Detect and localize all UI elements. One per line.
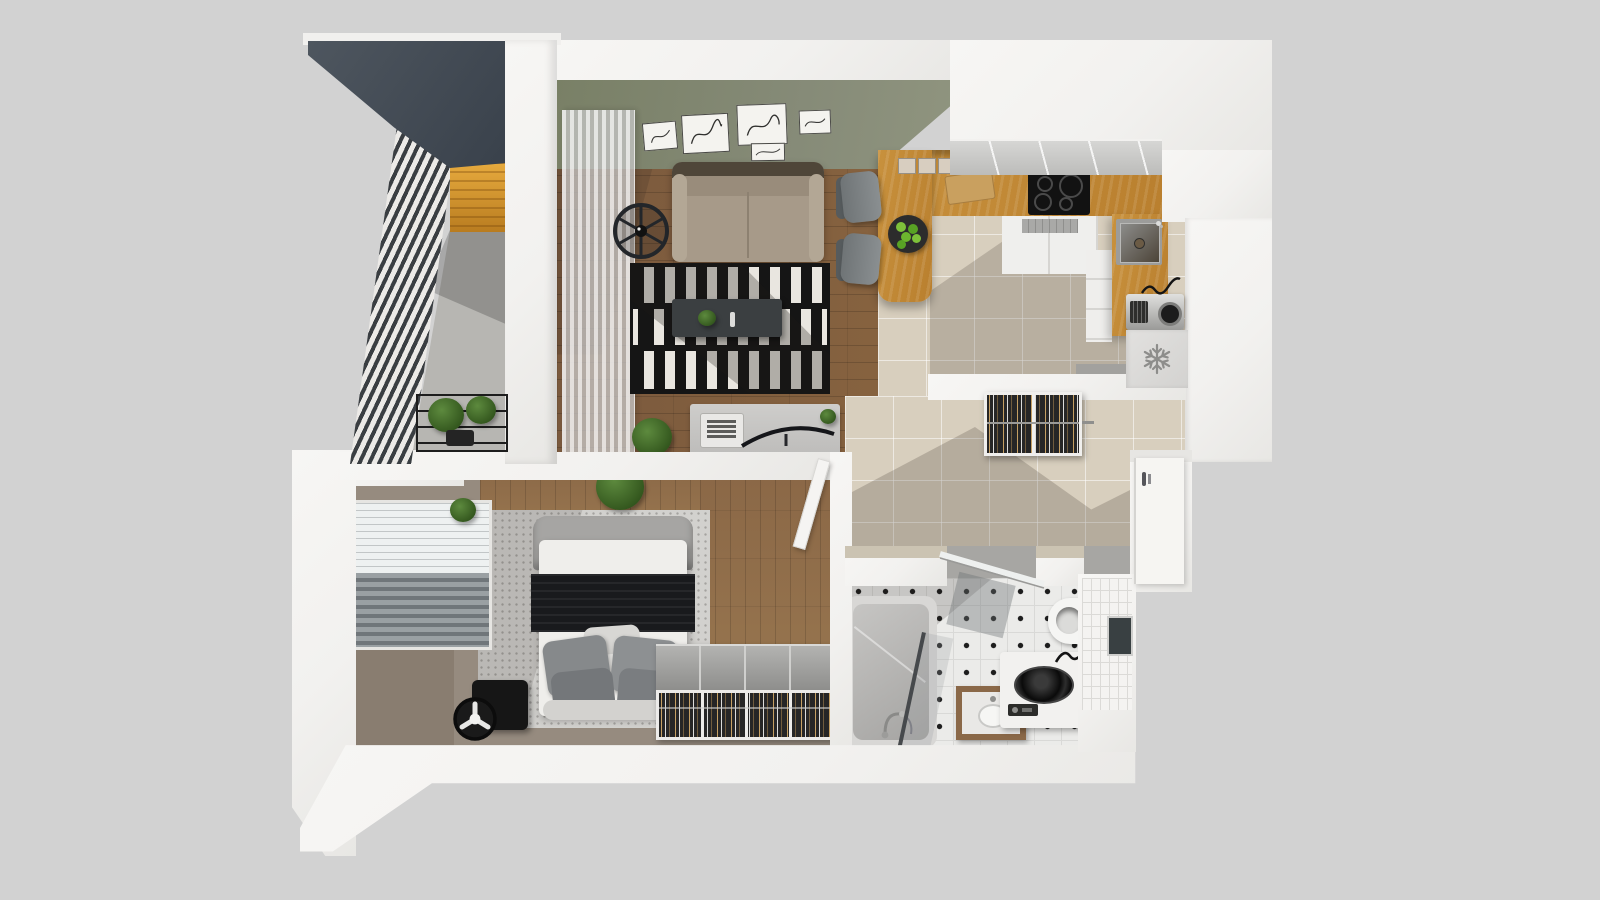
kitchen-floor: [878, 150, 1186, 398]
bathroom-floor: [845, 578, 1083, 750]
bathtub-ledge-line: [854, 626, 926, 683]
washer-knob: [1012, 707, 1018, 713]
bathtub-basin: [853, 604, 929, 740]
washing-machine: [1000, 652, 1086, 728]
bathroom-floor-shadow: [845, 578, 1083, 658]
coffee-machine-dial: [1158, 302, 1182, 326]
olive-feature-wall: [557, 73, 963, 169]
apple: [901, 232, 911, 242]
kitchen-floor-shadow: [930, 214, 1180, 398]
storage-box-2: [918, 158, 936, 174]
sofa-armrest-right: [809, 174, 824, 262]
wardrobe-rail-stub: [1082, 421, 1094, 424]
faucet: [1156, 221, 1161, 226]
bed-scatter-pillow: [583, 624, 641, 656]
snowflake-icon: [1140, 342, 1174, 376]
wall-top-right-block: [950, 40, 1272, 152]
window-glass: [355, 503, 489, 573]
glass-pane: [896, 633, 953, 780]
entry-door-lintel: [1130, 450, 1192, 462]
wall-balcony-south: [292, 450, 464, 486]
glass-edge: [892, 632, 926, 774]
stool-back: [836, 239, 848, 281]
rug-stripe-row-1: [633, 267, 827, 303]
counter-right-arm: [1112, 214, 1168, 336]
bedroom-wood-floor-right: [700, 462, 836, 666]
bedroom-floor: [345, 466, 837, 758]
desk: [690, 404, 840, 456]
balcony-floor-shadow: [425, 230, 508, 325]
extractor-grille: [1022, 219, 1078, 233]
curved-monitor: [738, 414, 838, 452]
apple: [896, 222, 906, 232]
tub-faucet: [877, 694, 919, 740]
toilet: [1048, 598, 1100, 644]
floors-layer: [0, 0, 1600, 900]
kitchen-sink: [1116, 219, 1162, 265]
washer-control-panel: [1008, 704, 1038, 716]
striped-rug: [630, 263, 830, 394]
storage-box-1: [898, 158, 916, 174]
washer-button: [1022, 708, 1032, 712]
apple: [912, 234, 921, 243]
bathtub: [845, 596, 937, 748]
toilet-tank: [1090, 601, 1098, 641]
apple: [908, 224, 918, 234]
washer-drum-lid: [1014, 666, 1074, 704]
bedroom: [0, 0, 1600, 900]
vanity-faucet: [990, 696, 996, 702]
bathroom-mirror: [1107, 616, 1133, 656]
closet-divider: [701, 693, 704, 737]
rug-shadow: [630, 263, 830, 394]
balcony-floor: [408, 230, 508, 464]
wall-art-frame-3: [736, 103, 787, 146]
bedroom-wall-under-window: [356, 646, 454, 750]
wall-right-lower: [1185, 218, 1272, 462]
bathroom-glass-door: [936, 540, 1048, 592]
subway-tile-wall: [1082, 578, 1132, 710]
entry-door-handle: [1142, 472, 1146, 486]
line-art: [643, 122, 677, 151]
wall-tile-cap: [1036, 546, 1084, 558]
line-art: [682, 114, 729, 153]
upper-cabinet-run: [950, 139, 1162, 175]
living-room-floor-shadow: [557, 73, 879, 464]
living-room-floor: [557, 73, 879, 464]
bedroom-rug-shadow: [478, 510, 710, 728]
bed-pillow-right-back: [609, 635, 679, 697]
closet-divider: [745, 693, 748, 737]
bed-bolster: [543, 700, 693, 720]
wall-entry: [1130, 450, 1192, 592]
freezer-floor-marker: [1126, 330, 1188, 388]
wall-right-upper: [1162, 150, 1272, 222]
bedroom-door-leaf: [793, 458, 831, 550]
entry-door-handle-plate: [1148, 474, 1151, 484]
counter-left-arm: [878, 150, 932, 302]
wall-tile-cap: [845, 546, 947, 558]
washer-hose: [1054, 644, 1088, 666]
induction-cooktop: [1028, 171, 1090, 215]
wall-art-frame-1: [642, 121, 678, 152]
hallway-wardrobe: [984, 392, 1082, 456]
wall-bedroom-bathroom-divider: [830, 452, 852, 764]
sofa: [672, 162, 824, 262]
wall-art-frame-4: [799, 109, 832, 134]
balcony-plant-stand: [416, 394, 508, 452]
bathroom: [0, 0, 1600, 900]
closet-divider: [789, 693, 792, 737]
sink-drain: [1134, 238, 1145, 249]
desk-plant: [820, 409, 836, 424]
wall-art-frame-5: [751, 143, 785, 162]
ceiling-fan-icon: [611, 201, 671, 261]
wall-top-living: [548, 40, 970, 80]
vanity-basin: [978, 704, 1008, 728]
wall-bathroom-north-right: [1036, 546, 1084, 586]
wardrobe-divider: [1032, 395, 1035, 453]
sofa-back-cushions: [680, 176, 816, 196]
floor-plan-scene: [0, 0, 1600, 900]
hallway: [0, 0, 1600, 900]
toilet-bowl: [1056, 607, 1082, 634]
base-cabinet-faces: [1002, 216, 1098, 274]
hallway-floor-shadow: [845, 396, 1187, 568]
glass-door-pane: [946, 572, 1015, 638]
stool-seat: [839, 170, 882, 224]
coffee-machine-slots: [1130, 301, 1148, 323]
bed-pillow-right-front: [616, 667, 681, 714]
louvered-screen: [350, 126, 452, 464]
sofa-back: [672, 162, 824, 178]
sink-basin: [1120, 223, 1160, 263]
bedroom-plant-large: [596, 464, 644, 510]
floor-fan-icon: [452, 696, 498, 742]
bedroom-wood-floor-top: [480, 462, 834, 520]
bar-stool-1: [836, 172, 880, 224]
wall-hallway-north: [928, 374, 1186, 400]
laptop: [700, 413, 744, 448]
balcony-plant-2: [466, 396, 496, 424]
counter-top-run: [878, 150, 1170, 216]
bedroom-area-rug: [478, 510, 710, 728]
shower-glass-screen: [892, 632, 955, 780]
wall-bottom-outer: [300, 744, 1162, 856]
wall-left-outer: [292, 450, 356, 856]
line-art: [737, 104, 786, 145]
bedroom-closet: [656, 644, 836, 740]
balcony-plant-1: [428, 398, 464, 432]
canopy-roof: [308, 41, 508, 168]
closet-hanger-row: [656, 690, 836, 740]
kitchen: [0, 0, 1600, 900]
hallway-floor: [845, 396, 1187, 568]
wall-bathroom-north-left: [845, 546, 947, 586]
balcony-planter-box: [446, 430, 474, 446]
cabinet-strip-right: [1086, 250, 1112, 342]
wall-art-frame-2: [681, 113, 730, 154]
rug-stripe-row-3: [633, 351, 827, 389]
bar-stool-2: [836, 234, 880, 286]
laptop-keyboard: [707, 420, 736, 440]
closet-rail: [659, 707, 833, 709]
entry-door: [1134, 458, 1184, 584]
floor-fan-body: [472, 680, 528, 730]
bed-mattress: [539, 540, 687, 716]
freezer-floor-shadow: [1076, 364, 1128, 394]
line-art: [800, 110, 831, 133]
bed-pillow-left-front: [550, 667, 616, 715]
orange-slat-wall: [450, 162, 508, 232]
sheer-curtain: [562, 110, 635, 462]
closet-top-panels: [656, 644, 836, 690]
storage-box-3: [938, 158, 956, 174]
coffee-machine-cord: [1140, 276, 1184, 296]
living-room: [0, 0, 1600, 900]
bed-headboard: [533, 516, 693, 570]
console-plant: [698, 310, 716, 326]
console-remote: [730, 312, 735, 327]
apple: [897, 240, 906, 249]
bedroom-plant-small: [450, 498, 476, 522]
cutting-board: [944, 170, 996, 205]
stool-back: [836, 177, 848, 219]
walls-layer: [0, 0, 1600, 900]
line-art: [752, 144, 784, 161]
rug-stripe-row-2: [633, 309, 827, 345]
sofa-seat-divider: [747, 192, 749, 258]
wall-bedroom-north: [340, 452, 844, 480]
wardrobe-rail: [987, 422, 1079, 424]
burners: [1028, 171, 1090, 215]
fruit-plate: [888, 215, 928, 253]
living-room-plant: [632, 418, 672, 456]
bedroom-window: [352, 500, 492, 650]
coffee-machine: [1126, 294, 1184, 330]
wall-bathroom-right: [1078, 574, 1136, 752]
canopy-trim: [303, 33, 561, 45]
sofa-armrest-left: [672, 174, 687, 262]
venetian-blinds: [355, 573, 489, 647]
bed-blanket: [531, 574, 695, 632]
entry-mat: [935, 546, 1135, 588]
media-console: [672, 299, 782, 337]
balcony-pillar: [505, 40, 557, 464]
bed-pillow-left-back: [541, 634, 612, 698]
balcony: [0, 0, 1600, 900]
stool-seat: [840, 232, 882, 285]
vanity-sink: [956, 686, 1026, 740]
